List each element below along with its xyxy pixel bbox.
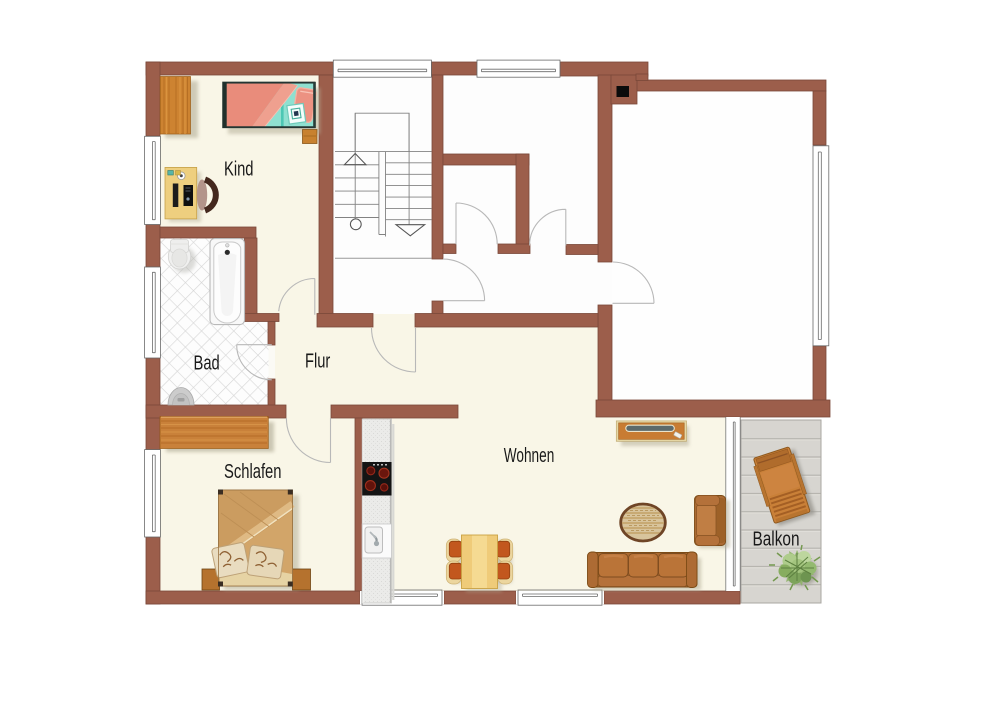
- svg-text:Wohnen: Wohnen: [504, 445, 555, 467]
- svg-text:Balkon: Balkon: [753, 529, 800, 551]
- svg-text:Flur: Flur: [305, 351, 331, 373]
- svg-text:Kind: Kind: [224, 159, 254, 181]
- svg-text:Bad: Bad: [194, 353, 220, 375]
- svg-text:Schlafen: Schlafen: [224, 461, 282, 483]
